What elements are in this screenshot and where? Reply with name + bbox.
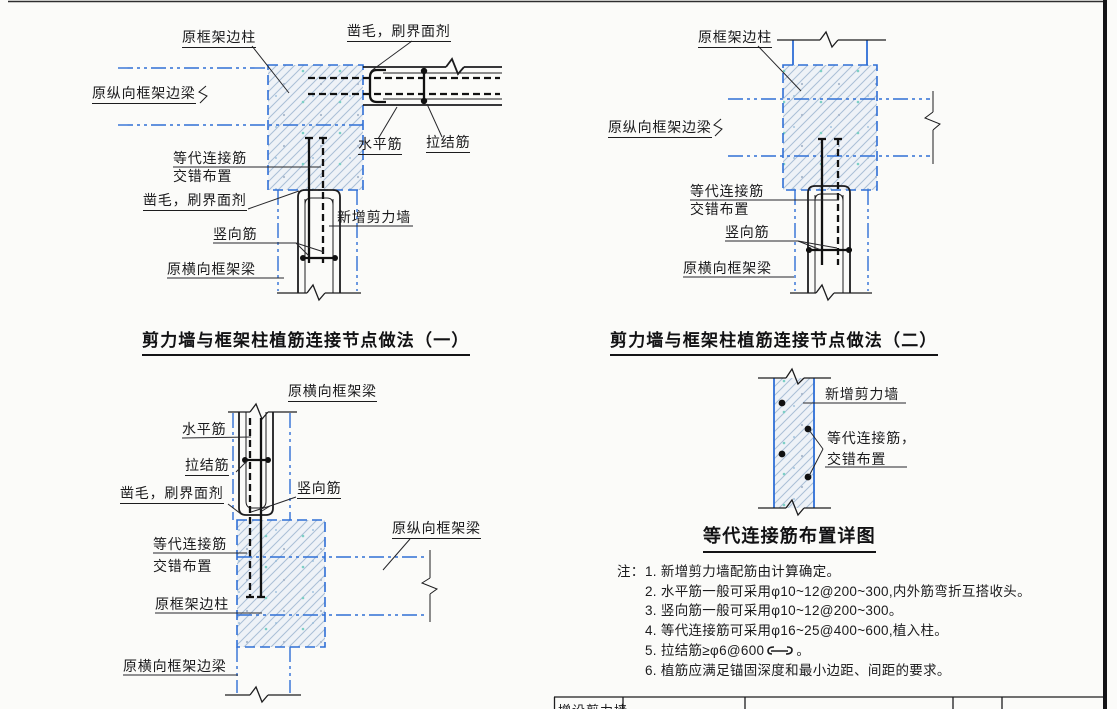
label-new-shear-wall: 新增剪力墙	[337, 210, 411, 225]
label-equivalent-connection-bar: 等代连接筋	[690, 184, 764, 199]
label-original-transverse-beam: 原横向框架梁	[167, 262, 256, 277]
label-chisel-interface-bottom: 凿毛，刷界面剂	[143, 193, 247, 211]
label-tie-bar: 拉结筋	[185, 458, 229, 476]
label-original-longitudinal-edge-beam: 原纵向框架边梁	[608, 120, 712, 138]
label-equivalent-connection-bar: 等代连接筋	[153, 537, 227, 552]
note-line-6: 6. 植筋应满足锚固深度和最小边距、间距的要求。	[617, 661, 1102, 681]
tie-bar-hook-icon	[766, 643, 794, 655]
note-item: 1. 新增剪力墙配筋由计算确定。	[645, 564, 840, 579]
label-chisel-interface: 凿毛，刷界面剂	[120, 486, 224, 504]
label-equivalent-connection-bar: 等代连接筋，	[827, 431, 916, 446]
label-equivalent-connection-bar: 等代连接筋	[173, 151, 247, 166]
label-staggered-arrangement: 交错布置	[827, 452, 886, 467]
note-line-1: 注：1. 新增剪力墙配筋由计算确定。	[617, 562, 1102, 582]
note-line-4: 4. 等代连接筋可采用φ16~25@400~600,植入柱。	[617, 621, 1102, 641]
label-horizontal-bar: 水平筋	[358, 137, 402, 155]
label-chisel-interface-top: 凿毛，刷界面剂	[347, 24, 451, 42]
diagram1-title: 剪力墙与框架柱植筋连接节点做法（一）	[142, 326, 470, 356]
diagram4-title: 等代连接筋布置详图	[703, 522, 876, 553]
label-horizontal-bar: 水平筋	[182, 422, 226, 437]
label-tie-bar: 拉结筋	[426, 135, 470, 153]
note-item: 2. 水平筋一般可采用φ10~12@200~300,内外筋弯折互搭收头。	[645, 584, 1031, 599]
label-original-longitudinal-edge-beam: 原纵向框架边梁	[92, 86, 196, 104]
label-vertical-bar: 竖向筋	[725, 225, 769, 240]
note-item: 5. 拉结筋≥φ6@600	[645, 643, 764, 658]
note-item: 。	[796, 643, 810, 658]
label-original-frame-edge-column: 原框架边柱	[155, 597, 229, 612]
note-item: 6. 植筋应满足锚固深度和最小边距、间距的要求。	[645, 663, 951, 678]
label-staggered-arrangement: 交错布置	[690, 202, 749, 217]
notes-block: 注：1. 新增剪力墙配筋由计算确定。 2. 水平筋一般可采用φ10~12@200…	[617, 562, 1102, 680]
notes-prefix: 注：	[617, 562, 645, 582]
label-new-shear-wall: 新增剪力墙	[825, 387, 899, 402]
label-vertical-bar: 竖向筋	[297, 481, 341, 499]
drawing-sheet: 原框架边柱 凿毛，刷界面剂 原纵向框架边梁 等代连接筋 交错布置 凿毛，刷界面剂…	[0, 0, 1117, 709]
label-staggered-arrangement: 交错布置	[173, 169, 232, 184]
note-line-5: 5. 拉结筋≥φ6@600。	[617, 641, 1102, 661]
label-staggered-arrangement: 交错布置	[153, 559, 212, 574]
note-item: 4. 等代连接筋可采用φ16~25@400~600,植入柱。	[645, 623, 948, 638]
label-original-transverse-beam: 原横向框架梁	[683, 261, 772, 276]
label-vertical-bar: 竖向筋	[213, 227, 257, 242]
label-original-transverse-beam: 原横向框架梁	[288, 384, 377, 402]
note-item: 3. 竖向筋一般可采用φ10~12@200~300。	[645, 603, 903, 618]
title-block-project-cell: 增设剪力墙	[558, 700, 628, 709]
label-original-frame-edge-column: 原框架边柱	[698, 30, 772, 48]
diagram2-title: 剪力墙与框架柱植筋连接节点做法（二）	[610, 326, 938, 356]
note-line-3: 3. 竖向筋一般可采用φ10~12@200~300。	[617, 601, 1102, 621]
label-original-transverse-edge-beam: 原横向框架边梁	[123, 659, 227, 674]
label-original-frame-edge-column: 原框架边柱	[182, 30, 256, 48]
note-line-2: 2. 水平筋一般可采用φ10~12@200~300,内外筋弯折互搭收头。	[617, 582, 1102, 602]
label-original-longitudinal-beam: 原纵向框架梁	[392, 521, 481, 539]
